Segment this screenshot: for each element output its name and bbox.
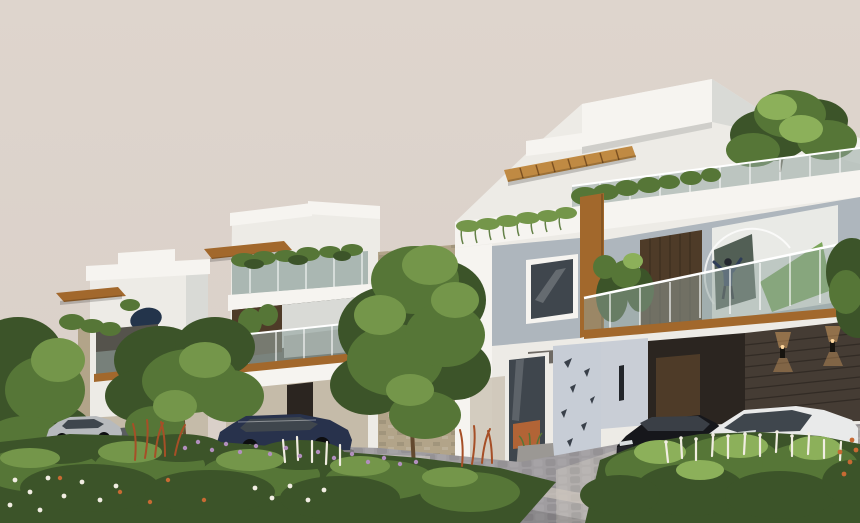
- sconce-light: [781, 345, 785, 349]
- sconce-light: [831, 339, 835, 343]
- wall-lamp-strip: [619, 365, 624, 401]
- pot-plant-light: [623, 253, 643, 269]
- entry-door: [656, 354, 700, 424]
- render-canvas: [0, 0, 860, 523]
- entry-wall: [601, 338, 648, 429]
- person-head: [724, 258, 732, 266]
- car-windows: [640, 416, 710, 431]
- architectural-render: [0, 0, 860, 523]
- canopy-light: [31, 338, 85, 382]
